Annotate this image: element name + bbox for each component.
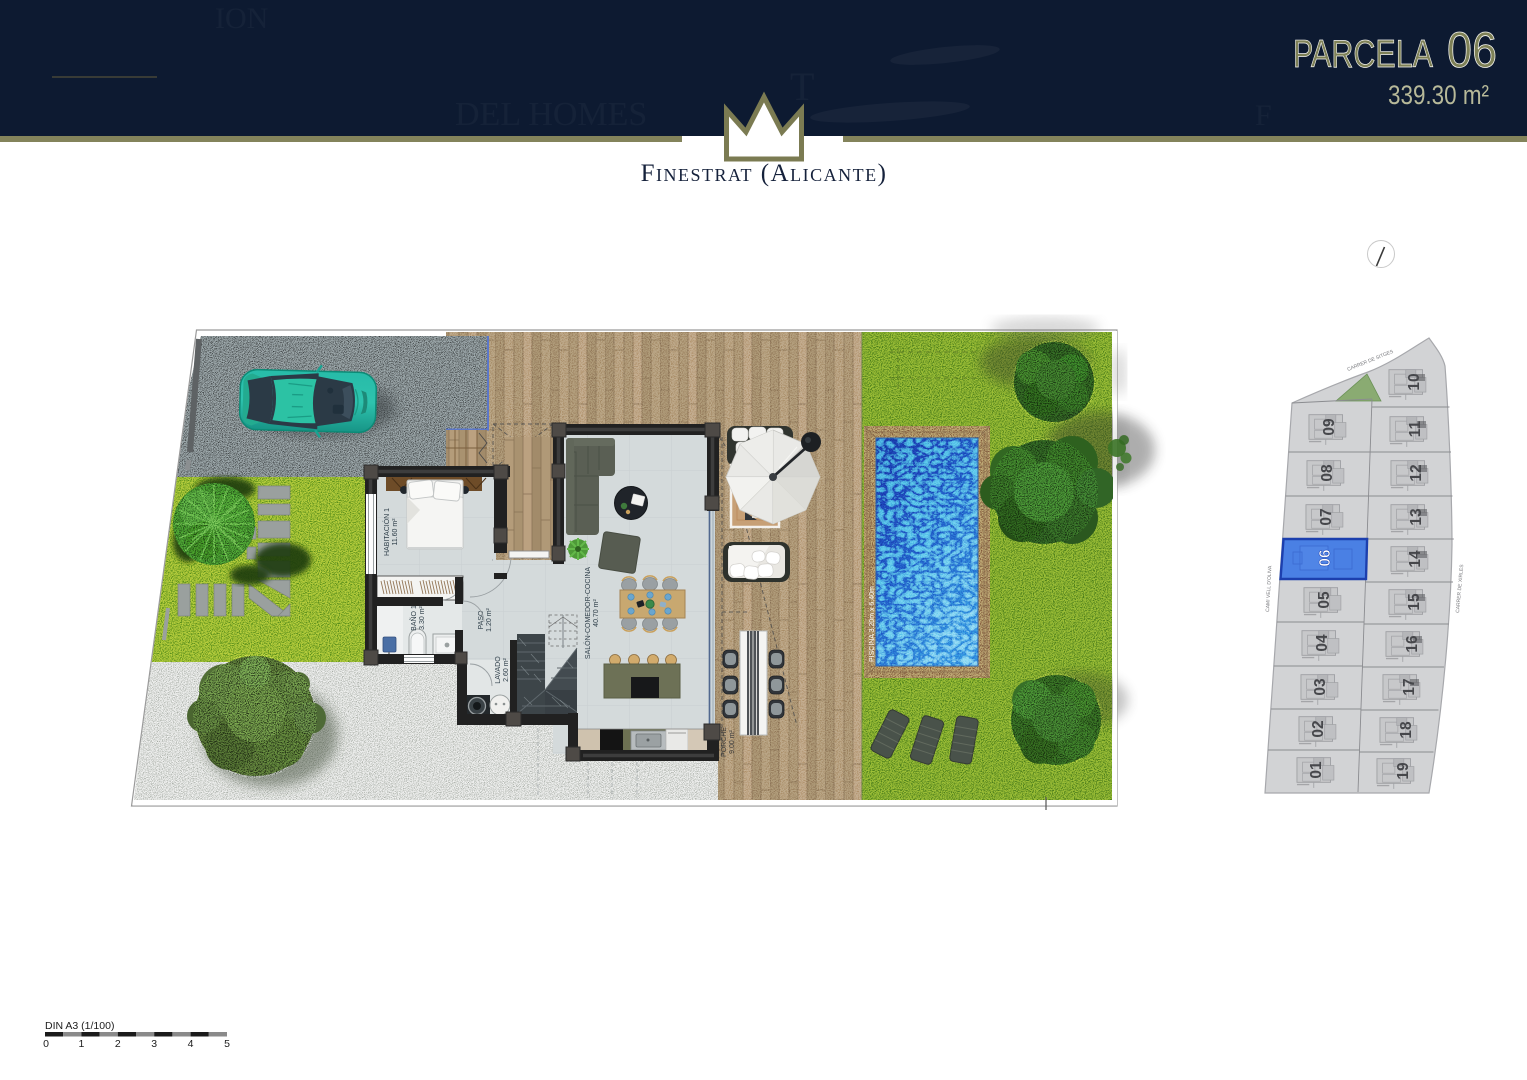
svg-text:1: 1: [78, 1038, 84, 1050]
svg-text:08: 08: [1319, 464, 1336, 482]
svg-text:2: 2: [115, 1038, 121, 1050]
svg-text:3: 3: [151, 1038, 157, 1050]
svg-text:3.30 m²: 3.30 m²: [419, 605, 426, 629]
svg-text:4: 4: [188, 1038, 194, 1050]
svg-text:ION: ION: [215, 2, 268, 35]
svg-text:339.30 m²: 339.30 m²: [1388, 80, 1489, 110]
svg-text:PISCINA 3.20m x 6.40m: PISCINA 3.20m x 6.40m: [869, 586, 876, 662]
svg-text:5: 5: [224, 1038, 230, 1050]
svg-text:40.70 m²: 40.70 m²: [593, 599, 600, 627]
svg-text:10: 10: [1406, 373, 1423, 390]
svg-text:06: 06: [1317, 549, 1334, 567]
svg-text:19: 19: [1395, 762, 1412, 780]
svg-text:05: 05: [1316, 591, 1333, 609]
svg-text:Finestrat (Alicante): Finestrat (Alicante): [641, 160, 888, 187]
svg-text:DIN A3 (1/100): DIN A3 (1/100): [45, 1020, 114, 1032]
svg-text:1.20 m²: 1.20 m²: [486, 607, 493, 631]
svg-text:HABITACIÓN 1: HABITACIÓN 1: [382, 508, 391, 556]
svg-text:12: 12: [1408, 464, 1425, 481]
svg-text:16: 16: [1404, 635, 1421, 653]
svg-text:11: 11: [1407, 420, 1424, 437]
svg-text:11.60 m²: 11.60 m²: [392, 518, 399, 546]
svg-text:DEL HOMES: DEL HOMES: [455, 96, 647, 133]
svg-text:LAVADO: LAVADO: [495, 656, 502, 684]
svg-text:0: 0: [43, 1038, 49, 1050]
svg-text:15: 15: [1406, 593, 1423, 611]
svg-text:14: 14: [1407, 550, 1424, 568]
svg-text:04: 04: [1314, 634, 1331, 652]
svg-text:02: 02: [1310, 720, 1327, 737]
svg-text:17: 17: [1401, 678, 1418, 695]
svg-text:03: 03: [1312, 678, 1329, 696]
svg-text:PORCHE: PORCHE: [721, 727, 728, 757]
svg-text:09: 09: [1321, 418, 1338, 436]
svg-text:13: 13: [1408, 508, 1425, 526]
svg-text:18: 18: [1398, 721, 1415, 739]
svg-text:PARCELA: PARCELA: [1293, 33, 1433, 76]
svg-text:SALÓN-COMEDOR-COCINA: SALÓN-COMEDOR-COCINA: [583, 567, 592, 660]
svg-text:2.60 m²: 2.60 m²: [503, 657, 510, 681]
svg-text:07: 07: [1318, 508, 1335, 525]
svg-text:T: T: [790, 64, 814, 109]
svg-text:9.00 m²: 9.00 m²: [729, 729, 736, 753]
svg-text:06: 06: [1447, 22, 1497, 78]
svg-text:F: F: [1255, 99, 1272, 132]
svg-text:BAÑO 1: BAÑO 1: [409, 605, 418, 631]
svg-text:01: 01: [1308, 761, 1325, 779]
